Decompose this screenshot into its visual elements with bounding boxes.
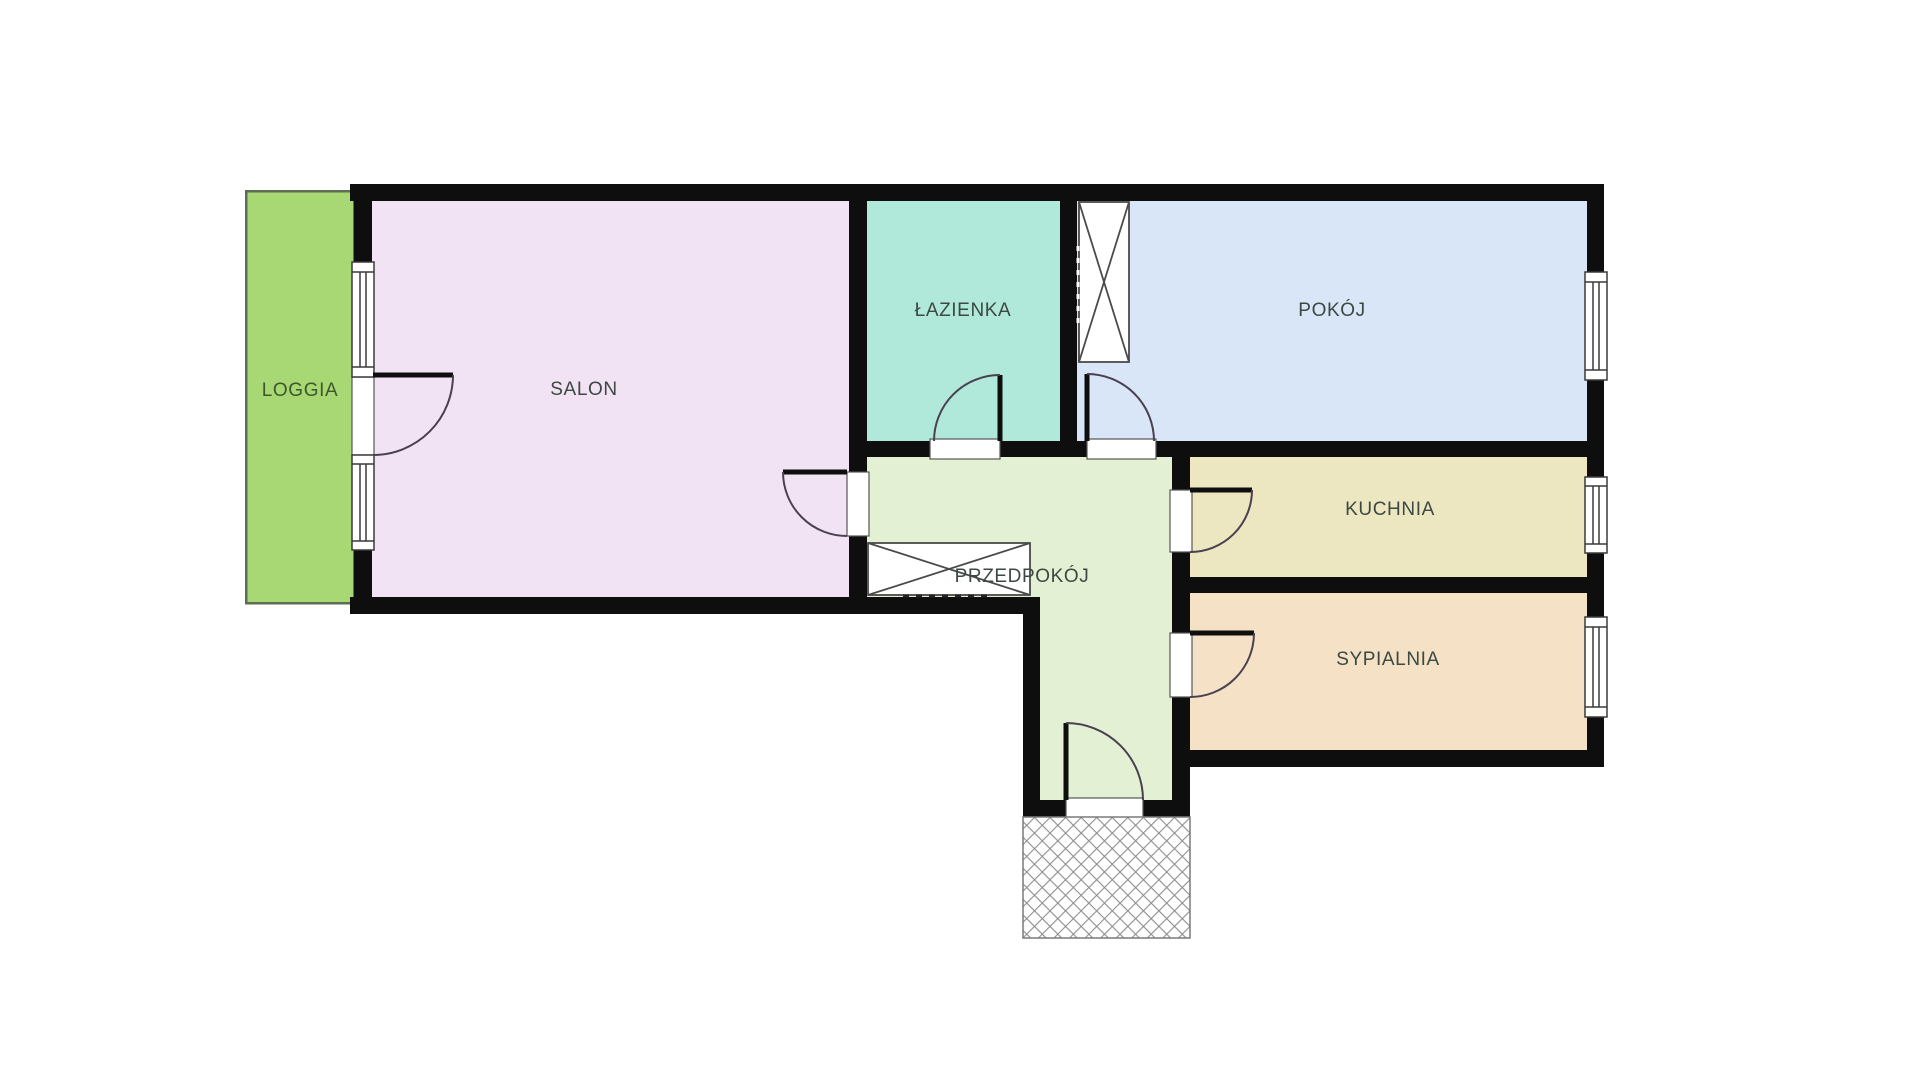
door-opening-lazienka bbox=[930, 439, 1000, 459]
wall-right-c bbox=[1587, 553, 1604, 617]
door-opening-sypialnia bbox=[1170, 633, 1192, 697]
room-sypialnia bbox=[1190, 593, 1587, 750]
door-opening-kuchnia bbox=[1170, 490, 1192, 552]
wall-corridor-left bbox=[1023, 597, 1040, 817]
room-label-lazienka: ŁAZIENKA bbox=[915, 300, 1012, 321]
wall-right-b bbox=[1587, 380, 1604, 477]
wall-kuchnia-sypialnia bbox=[1172, 577, 1604, 593]
wall-sypialnia-bottom bbox=[1172, 750, 1604, 767]
door-opening-salon bbox=[847, 472, 869, 536]
room-label-pokoj: POKÓJ bbox=[1298, 299, 1365, 321]
room-lazienka bbox=[867, 201, 1060, 441]
window-pokoj bbox=[1585, 272, 1607, 380]
wall-top bbox=[350, 184, 1604, 201]
room-przedpokoj bbox=[867, 457, 1172, 800]
room-label-loggia: LOGGIA bbox=[262, 380, 338, 401]
room-label-przedpokoj: PRZEDPOKÓJ bbox=[955, 565, 1090, 587]
room-label-sypialnia: SYPIALNIA bbox=[1336, 649, 1440, 670]
floor-plan-canvas: LOGGIA SALON ŁAZIENKA POKÓJ PRZEDPOKÓJ K… bbox=[0, 0, 1920, 1080]
room-label-kuchnia: KUCHNIA bbox=[1345, 499, 1435, 520]
wall-right-a bbox=[1587, 184, 1604, 272]
window-kuchnia bbox=[1585, 477, 1607, 553]
window-salon-upper bbox=[352, 262, 374, 377]
wall-salon-bottom bbox=[350, 597, 1040, 614]
door-opening-entrance bbox=[1066, 798, 1143, 819]
wall-salon-left-upper bbox=[354, 184, 372, 262]
floor-plan: LOGGIA SALON ŁAZIENKA POKÓJ PRZEDPOKÓJ K… bbox=[0, 0, 1920, 1080]
door-opening-pokoj bbox=[1087, 439, 1156, 459]
closet-pokoj bbox=[1079, 202, 1129, 362]
wall-lazienka-pokoj bbox=[1060, 198, 1077, 457]
window-salon-lower bbox=[352, 455, 374, 550]
wall-salon-right-lower bbox=[849, 536, 867, 614]
room-label-salon: SALON bbox=[550, 379, 617, 400]
wall-salon-right-upper bbox=[849, 184, 867, 472]
wall-right-d bbox=[1587, 717, 1604, 767]
entry-hatch-area bbox=[1023, 817, 1190, 938]
window-sypialnia bbox=[1585, 617, 1607, 717]
room-pokoj bbox=[1077, 201, 1587, 441]
door-opening-loggia bbox=[352, 377, 374, 455]
